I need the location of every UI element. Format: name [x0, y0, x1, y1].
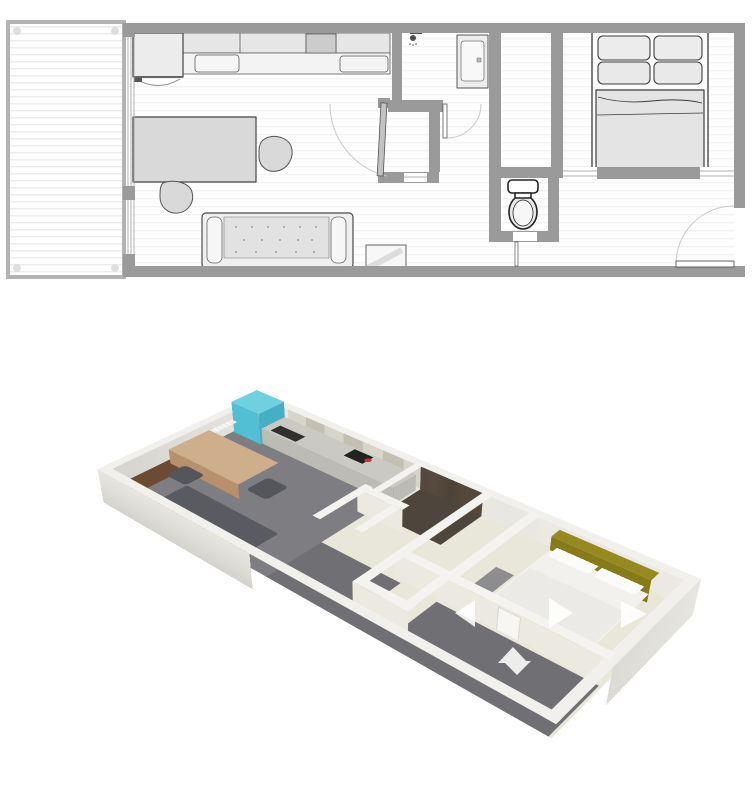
pillow [654, 36, 702, 60]
wall-hall-east [489, 23, 501, 242]
wall-kitchen-shower [392, 23, 402, 102]
chair [259, 136, 292, 171]
double-bed [592, 30, 708, 175]
wall-east [734, 23, 745, 213]
pillow [598, 36, 650, 60]
cooktop [306, 34, 336, 53]
camera-arrow-left-icon[interactable] [455, 600, 475, 627]
wall-closet-east [429, 112, 440, 172]
floor-plan-2d [0, 0, 756, 310]
camera-arrow-right-outer-icon[interactable] [621, 601, 647, 628]
wall-north [123, 23, 745, 33]
dining-table [133, 117, 256, 182]
blanket [596, 90, 704, 172]
sofa [202, 213, 353, 268]
washing-machine [457, 35, 488, 88]
floor-plan-3d [102, 413, 696, 750]
sink-drainer [340, 56, 388, 72]
chair [160, 181, 193, 213]
wall-south [123, 266, 745, 277]
wall-bedroom-south [597, 167, 700, 179]
pillow [654, 62, 702, 84]
camera-arrow-down-icon[interactable] [503, 661, 531, 675]
balcony [8, 22, 124, 277]
kitchen-counter [183, 33, 390, 74]
floorplanner-canvas: { "legend": { "views": ["2d-floor-plan",… [0, 0, 756, 800]
camera-controls [440, 590, 660, 690]
pillow [598, 62, 650, 84]
wall-wc-north [489, 167, 563, 178]
wall-shower-south [388, 100, 443, 112]
fridge [133, 33, 183, 86]
camera-arrow-right-icon[interactable] [549, 598, 573, 628]
camera-arrow-up-icon[interactable] [498, 647, 528, 663]
sink [195, 55, 239, 72]
toilet [508, 180, 538, 229]
wall-bedroom-west [551, 23, 563, 167]
